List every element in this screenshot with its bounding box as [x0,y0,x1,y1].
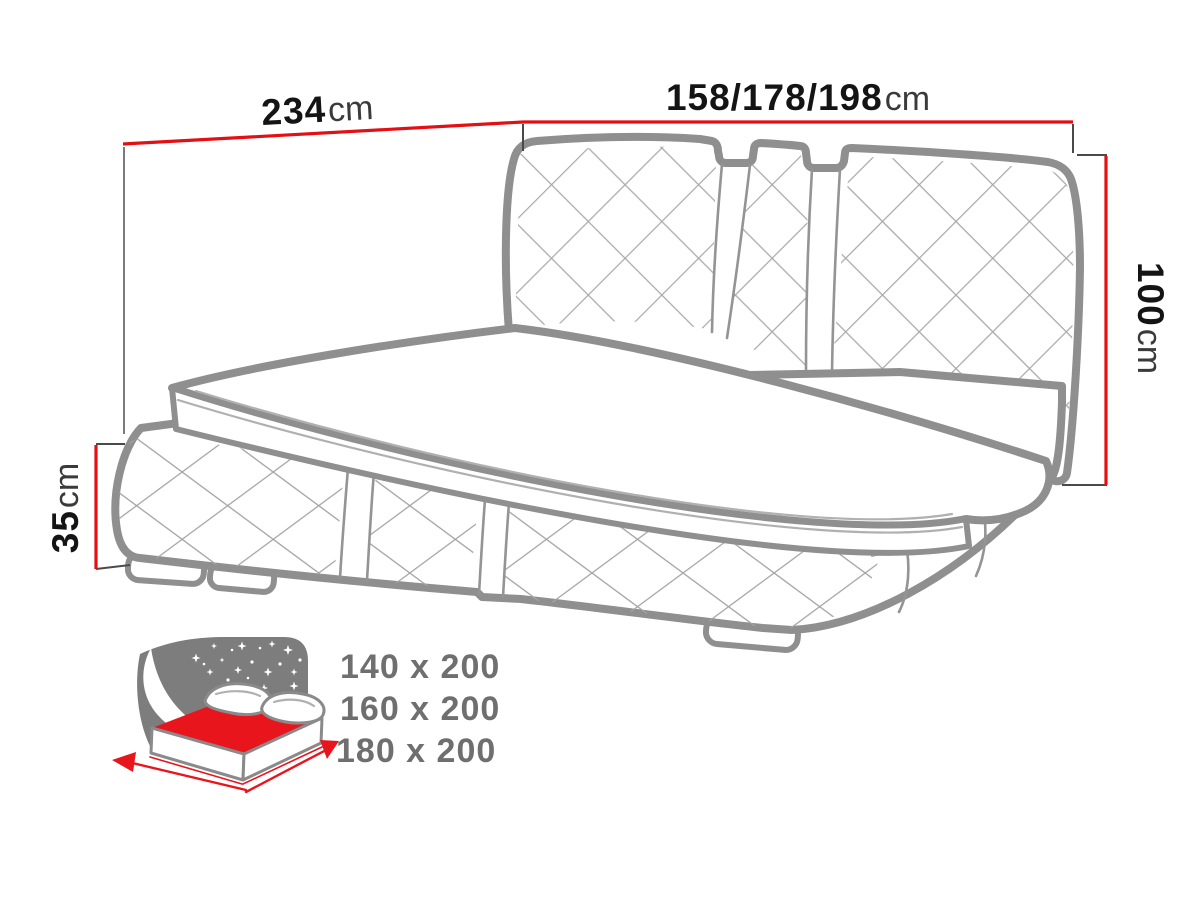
mattress-size-list: 140 x 200 160 x 200 180 x 200 [336,648,500,770]
height-unit: cm [1130,329,1168,374]
depth-label: 234cm [260,86,374,133]
bed-illustration [115,137,1080,651]
width-value: 158/178/198 [666,77,883,118]
height-value: 100 [1130,262,1171,327]
diagram-canvas: 234cm 158/178/198cm 100cm 35cm [0,0,1200,900]
headboard-quilt-left [515,147,716,330]
size-option-2: 160 x 200 [340,690,500,728]
mattress-size-icon [112,637,339,792]
base-height-unit: cm [48,463,86,508]
base-height-value: 35 [45,510,86,553]
bed-dimension-diagram: 234cm 158/178/198cm 100cm 35cm [0,0,1200,900]
base-height-label: 35cm [45,463,86,553]
height-label: 100cm [1130,262,1171,374]
depth-unit: cm [327,89,374,129]
base-height-tick-bottom [96,565,130,569]
size-option-1: 140 x 200 [340,648,500,686]
width-label: 158/178/198cm [666,77,930,118]
size-option-3: 180 x 200 [336,732,496,770]
width-unit: cm [885,80,930,118]
depth-value: 234 [260,89,327,134]
